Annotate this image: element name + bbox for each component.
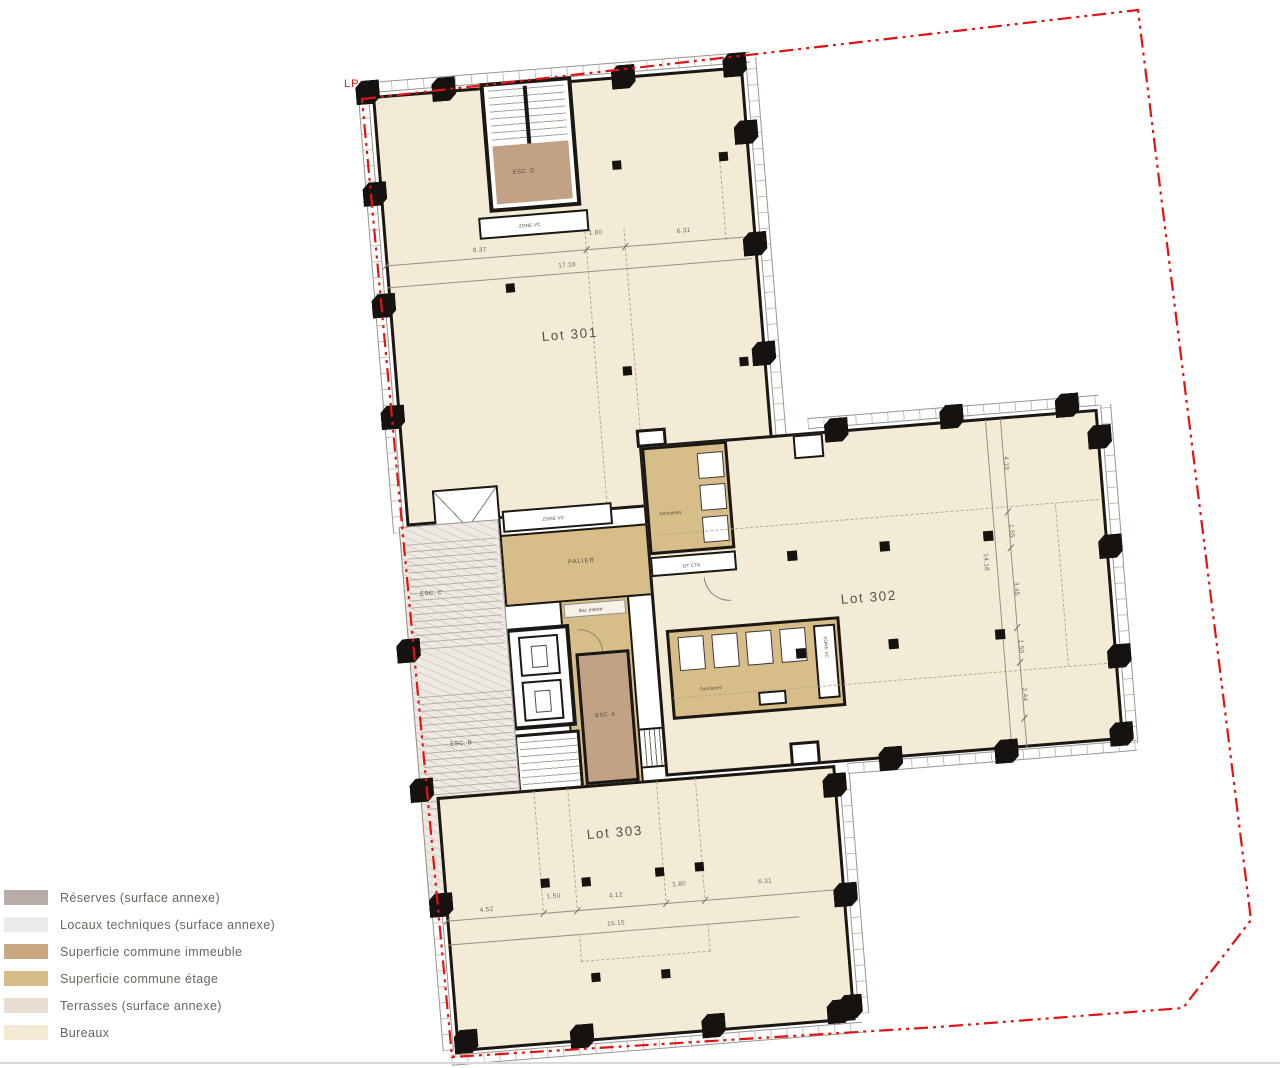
sanitary-room-lower: ZONE VC Sanitaires: [666, 616, 847, 720]
column-marker: [505, 283, 515, 293]
dimension-label: 9.37: [472, 246, 486, 254]
floor-plan: ESC. D ZONE VC 9.37 1.80 6.31 17.18 Lot …: [372, 38, 1168, 1068]
zone-vc-label-1: ZONE VC: [519, 222, 541, 229]
sanitaires-upper-label: Sanitaires: [659, 510, 682, 517]
column-marker: [739, 357, 749, 367]
dimension-label: 4.19: [1002, 456, 1010, 470]
legend-swatch: [4, 998, 48, 1013]
dimension-label: 14.18: [982, 553, 990, 571]
dimension-label: 16.15: [607, 919, 625, 927]
toilet-stall: [699, 483, 727, 511]
dimension-label: 1.55: [1007, 524, 1015, 538]
dimension-label: 1.50: [547, 892, 561, 900]
stairwell-esc-a: ESC. A: [575, 649, 639, 785]
duct-box: [789, 740, 821, 766]
column-marker: [888, 639, 899, 650]
legend-label: Superficie commune étage: [60, 972, 218, 986]
legend-swatch: [4, 944, 48, 959]
elevator-car: [521, 679, 564, 722]
column-marker: [612, 160, 622, 170]
column-marker: [540, 878, 550, 888]
duct-box: [793, 433, 825, 459]
column-marker: [983, 531, 994, 542]
esc-a-label: ESC. A: [595, 711, 616, 719]
legend-swatch: [4, 971, 48, 986]
column-marker: [719, 152, 729, 162]
legend-label: Terrasses (surface annexe): [60, 999, 222, 1013]
floor-plan-page: ESC. D ZONE VC 9.37 1.80 6.31 17.18 Lot …: [0, 0, 1280, 1068]
lot-303-area: [436, 765, 855, 1052]
dimension-label: 6.31: [677, 227, 691, 235]
sanitaires-lower-label: Sanitaires: [699, 685, 722, 692]
dimension-label: 3.45: [1012, 582, 1020, 596]
column-marker: [695, 862, 705, 872]
toilet-stall: [745, 630, 774, 666]
column-marker: [655, 867, 665, 877]
column-marker: [787, 550, 798, 561]
dimension-label: 1.80: [588, 229, 602, 237]
column-marker: [591, 973, 601, 983]
column-marker: [995, 629, 1006, 640]
duct-gaine: ZONE VC: [813, 624, 841, 700]
legend-label: Locaux techniques (surface annexe): [60, 918, 275, 932]
dimension-label: 1.50: [1017, 639, 1025, 653]
dimension-label: 4.52: [479, 906, 493, 914]
legend-swatch: [4, 917, 48, 932]
elevator-shaft: [505, 624, 577, 731]
fixture-box: [758, 690, 787, 706]
toilet-stall: [697, 451, 725, 479]
column-marker: [581, 877, 591, 887]
legend-swatch: [4, 890, 48, 905]
elevator-car: [518, 634, 561, 677]
legend-swatch: [4, 1025, 48, 1040]
elevator-car-inner: [534, 690, 552, 713]
esc-d-landing: ESC. D: [492, 140, 572, 204]
column-marker: [661, 969, 671, 979]
sanitary-room-upper: Sanitaires: [641, 441, 735, 556]
dimension-label: 4.12: [609, 891, 623, 899]
zone-vc-label-2: ZONE VC: [542, 515, 564, 522]
legend-label: Réserves (surface annexe): [60, 891, 220, 905]
column-marker: [623, 366, 633, 376]
dimension-label: 6.31: [758, 877, 772, 885]
esc-d-label: ESC. D: [512, 168, 535, 176]
dimension-label: 17.18: [558, 261, 576, 269]
toilet-stall: [677, 635, 706, 671]
duct-box: [636, 428, 667, 448]
dimension-label: 2.44: [1021, 687, 1029, 701]
legend-label: Bureaux: [60, 1026, 109, 1040]
legend-label: Superficie commune immeuble: [60, 945, 242, 959]
dimension-label: 1.80: [672, 880, 686, 888]
planter-label: Bac plante: [579, 606, 603, 613]
gt-cta-label-2: GT CTA: [683, 562, 701, 568]
zone-vc-label-4: ZONE VC: [823, 636, 830, 658]
elevator-car-inner: [531, 645, 549, 668]
stairwell-esc-d: ESC. D: [479, 76, 581, 213]
page-bottom-rule: [0, 1062, 1280, 1064]
lp-label: LP: [344, 78, 359, 90]
column-marker: [879, 541, 890, 552]
toilet-stall: [711, 632, 740, 668]
column-marker: [796, 648, 807, 659]
